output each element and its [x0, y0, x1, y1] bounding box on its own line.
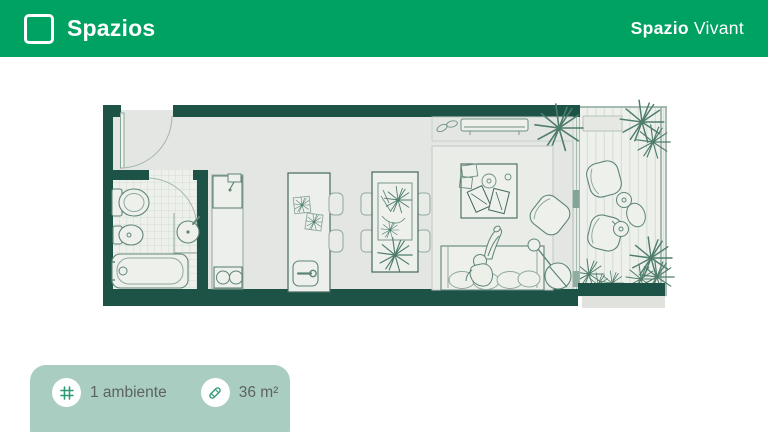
dining-chair: [417, 230, 430, 252]
dining-chair: [417, 193, 430, 215]
kitchen-sink: [213, 174, 242, 208]
area-info: 36 m²: [201, 378, 279, 407]
unit-info-badge: 1 ambiente 36 m²: [30, 365, 290, 432]
toilet: [112, 189, 149, 216]
rooms-info: 1 ambiente: [52, 378, 167, 407]
app-window: Spazios SpazioVivant: [0, 0, 768, 432]
cooktop: [214, 267, 243, 288]
ruler-icon: [201, 378, 230, 407]
rooms-label: 1 ambiente: [90, 384, 167, 402]
kitchen: [212, 174, 243, 289]
bar-stool: [329, 193, 343, 215]
bathtub: [112, 254, 188, 288]
bathroom: [112, 170, 199, 289]
planter-box: [583, 116, 622, 131]
door-panel: [573, 190, 580, 208]
balcony: [574, 100, 674, 297]
terrace-edge: [582, 296, 665, 308]
coffee-table: [459, 164, 517, 218]
bar-stool: [329, 230, 343, 252]
island-sink: [293, 261, 318, 286]
sliding-glass-door: [572, 117, 581, 289]
bidet: [113, 225, 143, 245]
grid-icon: [52, 378, 81, 407]
area-label: 36 m²: [239, 384, 279, 402]
